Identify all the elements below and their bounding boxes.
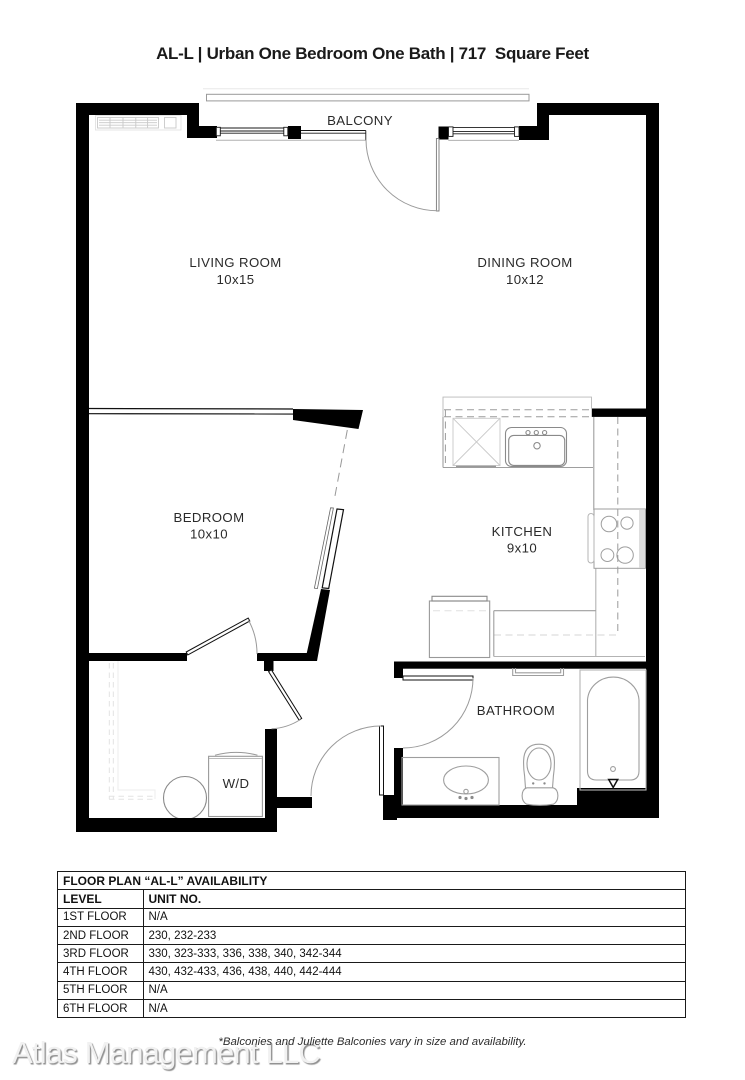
- svg-text:KITCHEN: KITCHEN: [492, 524, 553, 539]
- svg-text:10x15: 10x15: [217, 272, 255, 287]
- svg-text:10x12: 10x12: [506, 272, 544, 287]
- svg-text:BEDROOM: BEDROOM: [174, 510, 245, 525]
- svg-text:LIVING ROOM: LIVING ROOM: [189, 255, 281, 270]
- svg-text:BATHROOM: BATHROOM: [477, 703, 555, 718]
- svg-text:DINING ROOM: DINING ROOM: [477, 255, 572, 270]
- svg-text:9x10: 9x10: [507, 541, 537, 556]
- svg-text:10x10: 10x10: [190, 527, 228, 542]
- svg-text:BALCONY: BALCONY: [327, 113, 393, 128]
- svg-text:W/D: W/D: [223, 776, 250, 791]
